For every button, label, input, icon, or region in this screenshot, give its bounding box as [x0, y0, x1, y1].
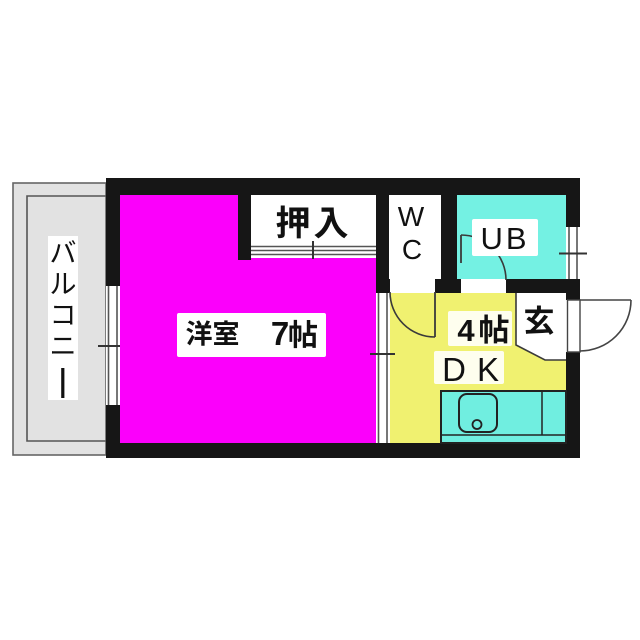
svg-text:K: K	[477, 351, 499, 388]
svg-text:D: D	[442, 351, 466, 388]
svg-text:7: 7	[271, 315, 289, 352]
svg-text:4: 4	[457, 313, 475, 348]
svg-text:W: W	[398, 201, 425, 232]
svg-text:C: C	[402, 234, 422, 265]
svg-text:UB: UB	[480, 221, 529, 256]
